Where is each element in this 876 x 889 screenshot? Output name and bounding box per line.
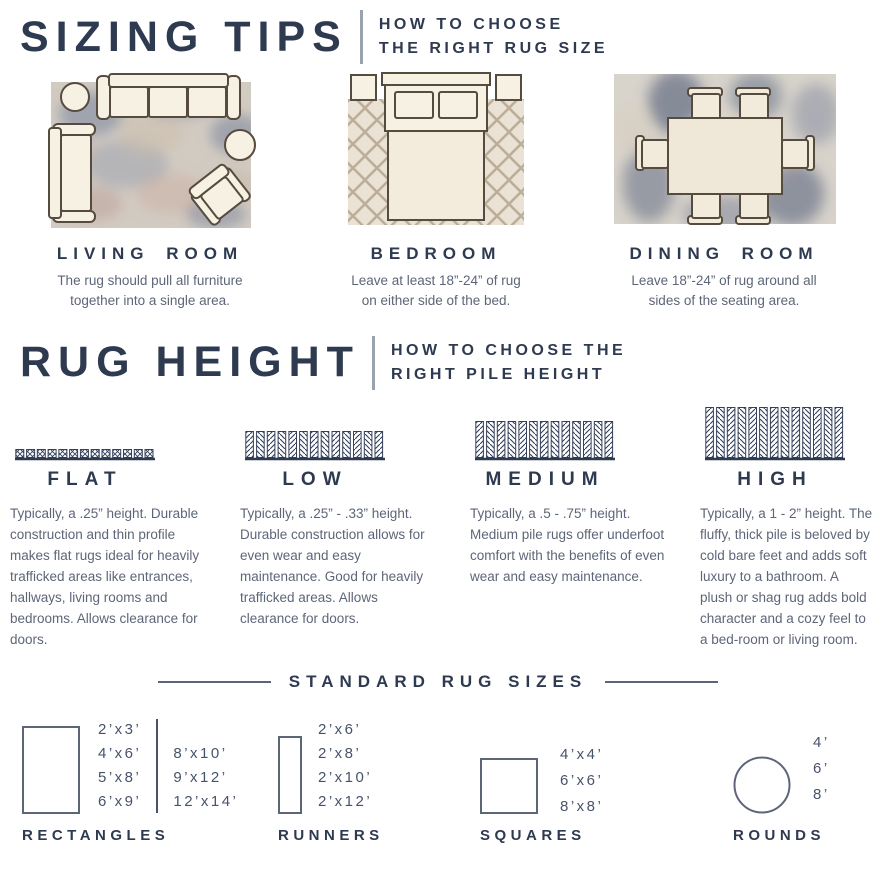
- size-value: 2’x12’: [318, 790, 372, 814]
- bedroom-description: Leave at least 18”-24” of rug on either …: [344, 271, 529, 312]
- standard-rug-sizes-title: STANDARD RUG SIZES: [289, 672, 587, 692]
- squares-content: 4’x4’ 6’x6’ 8’x8’: [480, 718, 733, 814]
- dining-room-title: DINING ROOM: [629, 244, 818, 264]
- pile-high-section: HIGH Typically, a 1 - 2” height. The flu…: [690, 404, 876, 650]
- size-value: 9’x12’: [173, 766, 238, 790]
- bedroom-title: BEDROOM: [371, 244, 502, 264]
- size-value: 5’x8’: [98, 766, 141, 790]
- living-room-description: The rug should pull all furniture togeth…: [50, 271, 250, 312]
- low-pile-icon: [240, 404, 390, 462]
- squares-label: SQUARES: [480, 827, 733, 844]
- rug-height-subtitle: HOW TO CHOOSE THE RIGHT PILE HEIGHT: [391, 339, 626, 387]
- medium-pile-icon: [470, 404, 620, 462]
- sizing-tips-header: SIZING TIPS HOW TO CHOOSE THE RIGHT RUG …: [0, 10, 876, 64]
- rectangles-sizes-col1: 2’x3’ 4’x6’ 5’x8’ 6’x9’: [98, 718, 141, 814]
- size-value: 4’: [813, 730, 830, 756]
- standard-rug-sizes-header: STANDARD RUG SIZES: [158, 672, 718, 692]
- living-room-section: LIVING ROOM The rug should pull all furn…: [0, 72, 300, 312]
- size-value: 2’x3’: [98, 718, 141, 742]
- size-value: 8’x10’: [173, 742, 238, 766]
- squares-sizes: 4’x4’ 6’x6’ 8’x8’: [560, 742, 603, 820]
- high-pile-description: Typically, a 1 - 2” height. The fluffy, …: [700, 503, 874, 650]
- rectangles-sizes-col2: 8’x10’ 9’x12’ 12’x14’: [173, 718, 238, 814]
- sizing-tips-title: SIZING TIPS: [20, 13, 348, 62]
- header-divider: [372, 336, 375, 390]
- size-value: 8’x8’: [560, 794, 603, 820]
- high-pile-label: HIGH: [700, 469, 850, 491]
- low-pile-description: Typically, a .25” - .33” height. Durable…: [240, 503, 438, 629]
- dining-room-description: Leave 18”-24” of rug around all sides of…: [627, 271, 822, 312]
- round-shape-icon: [733, 756, 791, 814]
- rectangle-shape-icon: [22, 726, 80, 814]
- size-value: 6’x9’: [98, 790, 141, 814]
- rounds-sizes: 4’ 6’ 8’: [813, 730, 830, 808]
- rooms-row: LIVING ROOM The rug should pull all furn…: [0, 72, 876, 312]
- subtitle-line: RIGHT PILE HEIGHT: [391, 363, 626, 387]
- pile-heights-row: FLAT Typically, a .25” height. Durable c…: [0, 404, 876, 650]
- pile-low-section: LOW Typically, a .25” - .33” height. Dur…: [230, 404, 460, 650]
- runners-label: RUNNERS: [278, 827, 480, 844]
- size-value: 2’x6’: [318, 718, 372, 742]
- rounds-group: 4’ 6’ 8’ ROUNDS: [733, 718, 876, 844]
- subtitle-line: HOW TO CHOOSE: [379, 13, 608, 37]
- runners-sizes: 2’x6’ 2’x8’ 2’x10’ 2’x12’: [318, 718, 372, 814]
- square-shape-icon: [480, 758, 538, 814]
- size-value: 4’x4’: [560, 742, 603, 768]
- size-value: 2’x8’: [318, 742, 372, 766]
- rug-height-title: RUG HEIGHT: [20, 338, 360, 387]
- flat-pile-icon: [10, 404, 160, 462]
- size-value: 6’x6’: [560, 768, 603, 794]
- pile-medium-section: MEDIUM Typically, a .5 - .75” height. Me…: [460, 404, 690, 650]
- header-divider: [360, 10, 363, 64]
- rectangles-label: RECTANGLES: [22, 827, 278, 844]
- rectangles-group: 2’x3’ 4’x6’ 5’x8’ 6’x9’ 8’x10’ 9’x12’ 12…: [22, 718, 278, 844]
- runners-content: 2’x6’ 2’x8’ 2’x10’ 2’x12’: [278, 718, 480, 814]
- squares-group: 4’x4’ 6’x6’ 8’x8’ SQUARES: [480, 718, 733, 844]
- dining-room-illustration: [604, 72, 844, 230]
- rug-height-header: RUG HEIGHT HOW TO CHOOSE THE RIGHT PILE …: [0, 336, 876, 390]
- divider-line: [605, 681, 718, 683]
- subtitle-line: THE RIGHT RUG SIZE: [379, 37, 608, 61]
- size-value: 12’x14’: [173, 790, 238, 814]
- rounds-content: 4’ 6’ 8’: [733, 718, 876, 814]
- pile-flat-section: FLAT Typically, a .25” height. Durable c…: [0, 404, 230, 650]
- living-room-title: LIVING ROOM: [57, 244, 243, 264]
- flat-pile-label: FLAT: [10, 469, 160, 491]
- high-pile-icon: [700, 404, 850, 462]
- living-room-illustration: [31, 72, 269, 230]
- flat-pile-description: Typically, a .25” height. Durable constr…: [10, 503, 208, 650]
- rounds-label: ROUNDS: [733, 827, 876, 844]
- size-value: 4’x6’: [98, 742, 141, 766]
- bedroom-section: BEDROOM Leave at least 18”-24” of rug on…: [300, 72, 572, 312]
- size-value: 2’x10’: [318, 766, 372, 790]
- size-value: 6’: [813, 756, 830, 782]
- bedroom-illustration: [341, 72, 531, 230]
- sizes-divider: [156, 719, 158, 813]
- low-pile-label: LOW: [240, 469, 390, 491]
- runners-group: 2’x6’ 2’x8’ 2’x10’ 2’x12’ RUNNERS: [278, 718, 480, 844]
- runner-shape-icon: [278, 736, 302, 814]
- divider-line: [158, 681, 271, 683]
- rug-sizing-infographic: SIZING TIPS HOW TO CHOOSE THE RIGHT RUG …: [0, 0, 876, 889]
- medium-pile-label: MEDIUM: [470, 469, 620, 491]
- sizing-tips-subtitle: HOW TO CHOOSE THE RIGHT RUG SIZE: [379, 13, 608, 61]
- medium-pile-description: Typically, a .5 - .75” height. Medium pi…: [470, 503, 668, 587]
- rectangles-content: 2’x3’ 4’x6’ 5’x8’ 6’x9’ 8’x10’ 9’x12’ 12…: [22, 718, 278, 814]
- dining-room-section: DINING ROOM Leave 18”-24” of rug around …: [572, 72, 876, 312]
- size-value: 8’: [813, 782, 830, 808]
- subtitle-line: HOW TO CHOOSE THE: [391, 339, 626, 363]
- standard-sizes-row: 2’x3’ 4’x6’ 5’x8’ 6’x9’ 8’x10’ 9’x12’ 12…: [0, 718, 876, 844]
